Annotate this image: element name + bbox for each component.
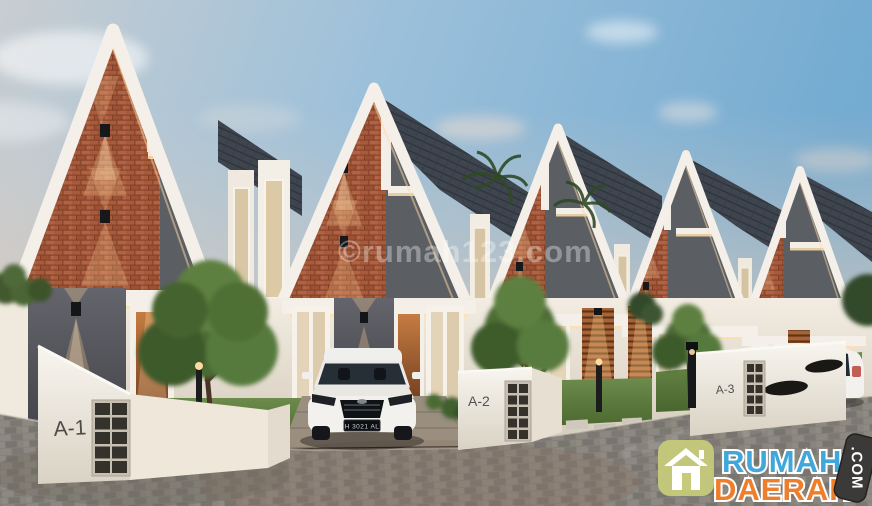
- fence-return: [532, 368, 562, 442]
- side-mirror: [412, 372, 422, 379]
- render-image: A-1 A-2 A-3: [0, 0, 872, 506]
- windshield: [316, 362, 408, 386]
- downlight-fixture: [594, 308, 602, 315]
- fence-a3: A-3: [690, 342, 846, 436]
- garden-bollard-light: [596, 359, 603, 413]
- taillight: [852, 366, 861, 377]
- house-label-a2: A-2: [468, 393, 490, 409]
- door-pane: [447, 312, 459, 410]
- tall-window: [265, 180, 283, 298]
- side-mirror: [302, 372, 312, 379]
- car-badge: [357, 399, 367, 404]
- logo-word-daerah: DAERAH: [714, 472, 853, 506]
- breeze-blocks: [744, 361, 765, 416]
- house-label-a1: A-1: [53, 416, 87, 441]
- logo-word-com: .COM: [848, 446, 866, 489]
- license-plate-text: H 3021 AL: [345, 424, 380, 431]
- car-wheel: [394, 426, 412, 440]
- seat-headrest: [338, 368, 350, 380]
- fence-return: [268, 404, 290, 468]
- seat-headrest: [374, 368, 386, 380]
- watermark-text: ©rumah123.com: [338, 234, 593, 269]
- brand-logo: RUMAH DAERAH .COM: [658, 432, 872, 506]
- car-wheel: [312, 426, 330, 440]
- house-label-a3: A-3: [715, 382, 735, 397]
- scene-canvas: A-1 A-2 A-3: [0, 0, 872, 506]
- breeze-blocks: [505, 381, 531, 441]
- breeze-blocks: [92, 400, 130, 476]
